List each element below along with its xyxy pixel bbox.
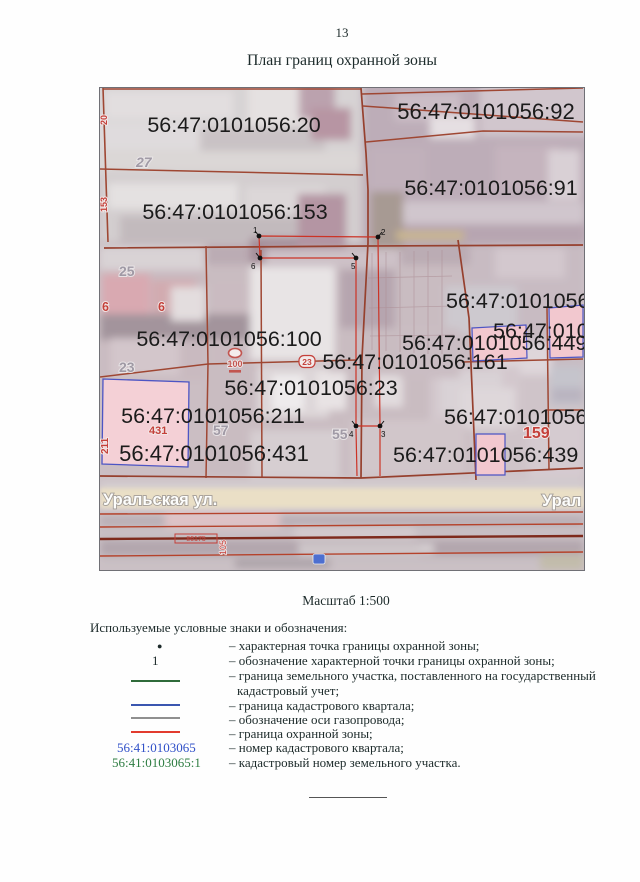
svg-text:211: 211 [100, 437, 111, 454]
svg-text:56:47:01010563: 56:47:01010563 [444, 405, 584, 429]
svg-text:56:47:0101056:439: 56:47:0101056:439 [393, 443, 578, 467]
svg-text:56:47:0101056:92: 56:47:0101056:92 [397, 99, 574, 124]
svg-text:5: 5 [351, 262, 356, 271]
svg-text:6: 6 [251, 262, 256, 271]
svg-text:4: 4 [349, 430, 354, 439]
svg-text:Урал: Урал [542, 492, 581, 510]
svg-text:56:47:0101056:100: 56:47:0101056:100 [136, 327, 321, 351]
svg-text:86175: 86175 [186, 536, 206, 543]
svg-text:56:47:0101056: 56:47:0101056 [446, 289, 584, 313]
svg-text:57: 57 [213, 422, 229, 438]
svg-text:56:47:0101056:449: 56:47:0101056:449 [402, 331, 584, 355]
svg-text:55: 55 [332, 426, 348, 442]
svg-text:Уральская ул.: Уральская ул. [103, 491, 217, 509]
svg-text:25: 25 [119, 263, 135, 279]
svg-text:159: 159 [523, 425, 550, 442]
svg-text:20: 20 [100, 115, 109, 125]
svg-text:23: 23 [302, 357, 312, 367]
svg-text:100: 100 [227, 359, 242, 369]
svg-text:431: 431 [149, 425, 167, 437]
svg-text:56:47:0101056:153: 56:47:0101056:153 [142, 200, 327, 224]
svg-text:2: 2 [381, 228, 386, 237]
svg-text:23: 23 [119, 359, 135, 375]
svg-text:6: 6 [158, 300, 165, 314]
svg-text:105: 105 [218, 540, 228, 555]
svg-text:56:47:0101056:23: 56:47:0101056:23 [224, 376, 397, 400]
svg-text:56:47:0101056:91: 56:47:0101056:91 [404, 176, 577, 200]
svg-text:1: 1 [253, 226, 258, 235]
svg-text:153: 153 [100, 197, 109, 212]
svg-text:56:47:0101056:20: 56:47:0101056:20 [147, 113, 320, 137]
svg-text:6: 6 [102, 300, 109, 314]
svg-text:56:47:0101056:431: 56:47:0101056:431 [119, 441, 309, 466]
svg-text:27: 27 [135, 154, 153, 170]
svg-text:3: 3 [381, 430, 386, 439]
